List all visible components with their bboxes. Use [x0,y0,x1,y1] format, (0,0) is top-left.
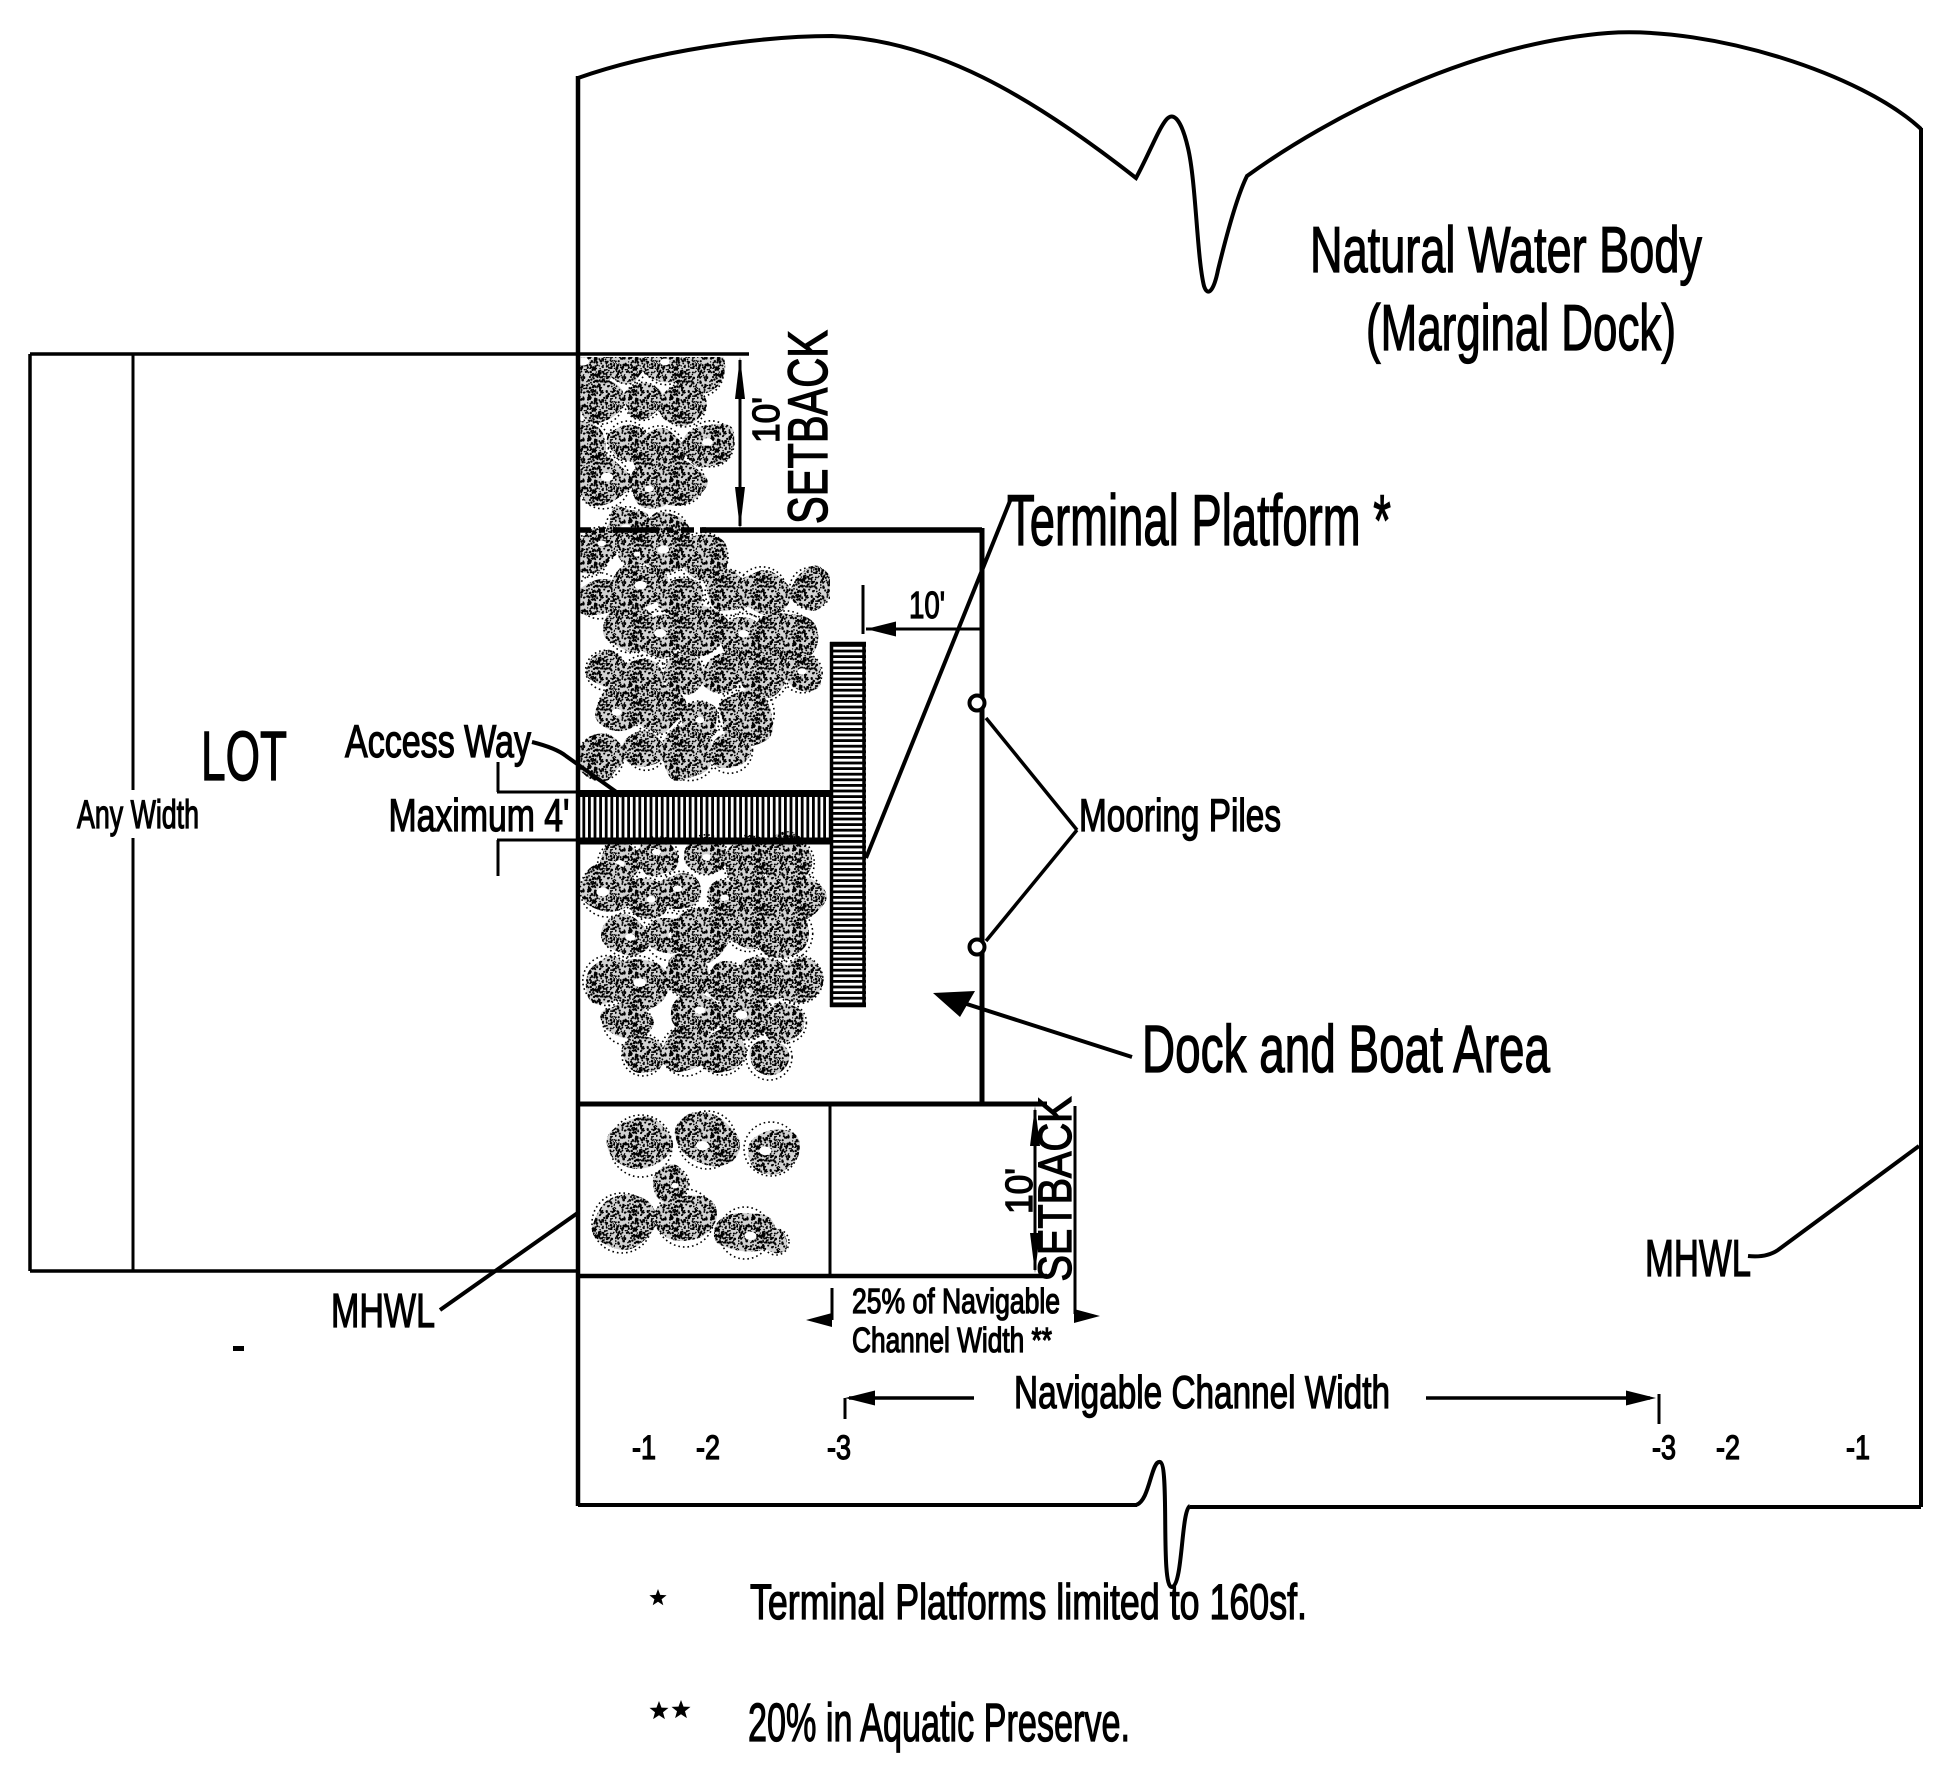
svg-text:Mooring Piles: Mooring Piles [1079,789,1281,841]
svg-text:Channel Width **: Channel Width ** [852,1321,1052,1360]
svg-text:Maximum 4': Maximum 4' [389,789,570,841]
svg-text:-1: -1 [632,1429,656,1467]
svg-text:SETBACK: SETBACK [776,330,839,524]
svg-text:Navigable Channel Width: Navigable Channel Width [1014,1366,1390,1418]
svg-text:(Marginal Dock): (Marginal Dock) [1366,291,1676,364]
svg-text:10': 10' [909,585,945,627]
svg-text:Terminal Platforms limited to: Terminal Platforms limited to 160sf. [750,1574,1307,1630]
svg-text:-2: -2 [696,1429,720,1467]
svg-text:-3: -3 [1652,1429,1676,1467]
svg-text:MHWL: MHWL [331,1285,435,1338]
svg-text:-2: -2 [1716,1429,1740,1467]
svg-text:LOT: LOT [201,717,287,795]
svg-text:MHWL: MHWL [1645,1230,1751,1288]
svg-text:SETBACK: SETBACK [1028,1097,1081,1282]
svg-text:Access Way: Access Way [345,715,531,767]
svg-text:25% of Navigable: 25% of Navigable [852,1282,1060,1321]
svg-text:-1: -1 [1846,1429,1870,1467]
svg-text:20% in Aquatic Preserve.: 20% in Aquatic Preserve. [748,1693,1130,1753]
svg-text:Natural Water Body: Natural Water Body [1310,213,1702,286]
svg-text:Any Width: Any Width [77,793,199,837]
svg-text:Dock and Boat Area: Dock and Boat Area [1142,1012,1551,1087]
svg-text:Terminal Platform *: Terminal Platform * [1007,481,1391,561]
svg-text:-3: -3 [827,1429,851,1467]
